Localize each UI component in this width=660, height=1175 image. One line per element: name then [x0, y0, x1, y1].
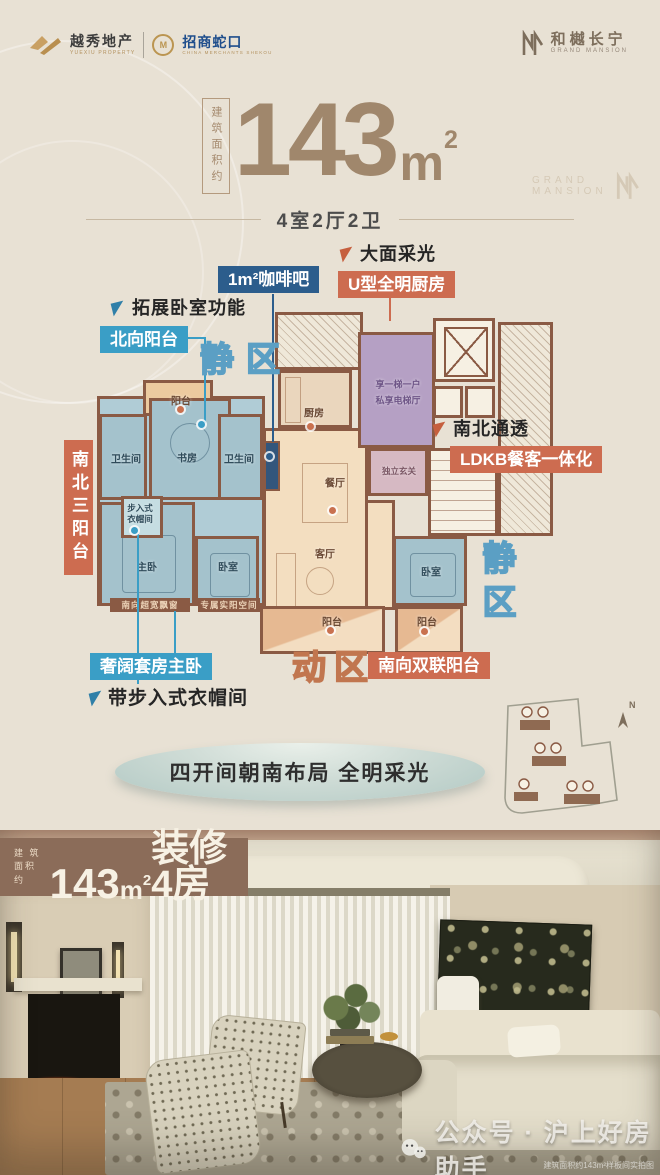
band-prefix-line1: 建 筑: [14, 847, 42, 861]
band-suffix: 装修4房: [151, 831, 248, 903]
marker-dot: [177, 406, 184, 413]
coffee-table: [312, 1042, 422, 1098]
shekou-name-en: CHINA MERCHANTS SHEKOU: [182, 50, 272, 55]
table-books: [330, 1029, 370, 1036]
bay-window-strip: 南向超宽飘窗: [110, 598, 190, 612]
project-name: 和樾长宁: [551, 32, 628, 49]
marker-dot: [329, 507, 336, 514]
callout-three-balconies: 南北三阳台: [64, 440, 93, 575]
coffee-bar-cabinet: [264, 441, 280, 491]
callout-marker: [340, 247, 356, 263]
room-label: 阳台: [417, 614, 437, 629]
area-unit: m: [400, 143, 444, 183]
faint-logo-icon: [615, 172, 641, 200]
leader-line: [389, 295, 391, 321]
callout-north-balcony: 北向阳台: [100, 326, 188, 353]
room-label: 享一梯一户: [375, 378, 420, 391]
area-number: 143: [234, 98, 396, 183]
room-label: 书房: [177, 450, 197, 465]
area-sup: 2: [444, 128, 458, 153]
band-num: 143: [50, 865, 120, 903]
room-label: 厨房: [304, 405, 324, 420]
layout-row: 4室2厅2卫: [0, 206, 660, 233]
room-label: 餐厅: [325, 475, 345, 490]
header-right-logo: 和樾长宁 GRAND MANSION: [521, 30, 628, 56]
layout-text: 4室2厅2卫: [277, 206, 384, 233]
mantel-shelf: [14, 978, 142, 991]
slogan-banner: 四开间朝南布局 全明采光: [115, 743, 485, 801]
room-label: 卧室: [218, 559, 238, 574]
zone-quiet-label: 静区: [472, 540, 521, 628]
dining-table: [302, 463, 348, 523]
room-label: 卫生间: [111, 451, 141, 466]
utility-box: [465, 386, 495, 418]
living-sofa: [276, 553, 296, 607]
yuexiu-name-en: YUEXIU PROPERTY: [70, 50, 135, 56]
faint-logo-line1: GRAND: [532, 175, 607, 186]
zone-active-label: 动区: [292, 640, 376, 689]
yuexiu-logo: 越秀地产 YUEXIU PROPERTY: [70, 34, 135, 55]
room-label: 独立玄关: [382, 465, 416, 477]
area-title: 建筑面积约 143 m 2: [202, 98, 458, 194]
yuexiu-logo-icon: [28, 32, 62, 58]
compass-n-label: N: [629, 700, 636, 710]
project-logo: 和樾长宁 GRAND MANSION: [551, 32, 628, 55]
elevator-shaft: [433, 318, 495, 382]
sconce-glow: [11, 932, 17, 982]
room-label: 卫生间: [224, 451, 254, 466]
section-band: 建 筑 面积约 143 m 2 装修4房: [0, 838, 248, 896]
marker-dot: [307, 423, 314, 430]
room-label: 私享电梯厅: [375, 394, 420, 407]
band-area-prefix: 建 筑 面积约: [14, 847, 42, 888]
faint-logo: GRAND MANSION: [532, 172, 641, 200]
table-bowl: [380, 1032, 398, 1041]
project-name-en: GRAND MANSION: [551, 48, 628, 54]
hallway-extension: [365, 500, 395, 610]
zone-quiet-label: 静区: [200, 332, 292, 381]
marker-dot: [266, 453, 273, 460]
faint-logo-line2: MANSION: [532, 186, 607, 197]
siteplan-map: [490, 692, 650, 832]
callout-u-kitchen: U型全明厨房: [338, 271, 455, 298]
callout-coffee-bar: 1m²咖啡吧: [218, 266, 319, 293]
utility-box: [433, 386, 463, 418]
callout-marker: [89, 691, 105, 707]
wechat-icon: [400, 1136, 427, 1162]
band-unit: m: [120, 878, 143, 903]
callout-closet-note: 带步入式衣帽间: [108, 683, 248, 710]
shekou-name: 招商蛇口: [182, 35, 272, 50]
grand-mansion-logo-icon: [521, 30, 545, 56]
callout-master-suite: 奢阔套房主卧: [90, 653, 212, 680]
marker-dot: [327, 627, 334, 634]
area-label: 建筑面积约: [202, 98, 230, 194]
shekou-logo-icon: M: [152, 34, 174, 56]
compass-icon: [618, 712, 628, 728]
sun-space-strip: 专属实阳空间: [198, 598, 260, 612]
band-sup: 2: [143, 872, 151, 889]
room-label: 阳台: [322, 614, 342, 629]
yuexiu-name: 越秀地产: [70, 34, 135, 49]
callout-expand-bedroom: 拓展卧室功能: [132, 294, 246, 320]
room-label: 主卧: [137, 559, 157, 574]
photo-caption: 建筑面积约143m²样板间实拍图: [543, 1160, 654, 1171]
marker-dot: [421, 628, 428, 635]
sofa-pillow: [507, 1024, 561, 1058]
table-books: [326, 1036, 374, 1044]
bay-window-label: 南向超宽飘窗: [121, 599, 178, 611]
poster-page: 越秀地产 YUEXIU PROPERTY M 招商蛇口 CHINA MERCHA…: [0, 0, 660, 1175]
callout-south-double-balcony: 南向双联阳台: [368, 652, 490, 679]
callout-ns-through: 南北通透: [453, 415, 529, 441]
sun-space-label: 专属实阳空间: [200, 599, 257, 611]
shekou-mark: M: [160, 40, 168, 50]
layout-line-right: [399, 219, 574, 220]
header-left-logos: 越秀地产 YUEXIU PROPERTY M 招商蛇口 CHINA MERCHA…: [28, 32, 273, 58]
callout-ldkb: LDKB餐客一体化: [450, 446, 602, 473]
band-prefix-line2: 面积约: [14, 860, 42, 887]
armchair: [143, 1049, 262, 1175]
slogan-text: 四开间朝南布局 全明采光: [170, 757, 431, 787]
room-label: 衣帽间: [127, 513, 153, 525]
marker-dot: [198, 421, 205, 428]
shekou-logo: 招商蛇口 CHINA MERCHANTS SHEKOU: [182, 35, 272, 55]
room-label: 卧室: [421, 564, 441, 579]
room-label: 客厅: [315, 546, 335, 561]
marker-dot: [131, 527, 138, 534]
kitchen-counter: [285, 377, 301, 423]
elevator-x: [444, 327, 488, 377]
leader-line: [174, 611, 176, 653]
logo-divider: [143, 32, 144, 58]
living-table: [306, 567, 334, 595]
layout-line-left: [86, 219, 261, 220]
callout-daylight: 大面采光: [360, 240, 436, 266]
